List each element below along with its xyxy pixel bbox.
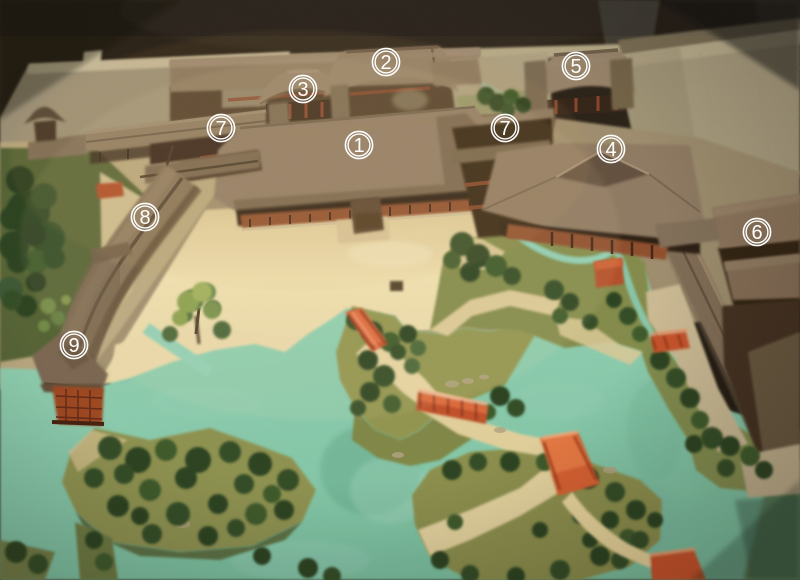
svg-text:4: 4 — [605, 139, 616, 161]
svg-text:7: 7 — [499, 118, 510, 140]
svg-text:2: 2 — [380, 52, 391, 74]
svg-text:9: 9 — [68, 335, 79, 357]
svg-text:5: 5 — [570, 56, 581, 78]
svg-text:8: 8 — [139, 207, 150, 229]
svg-text:1: 1 — [353, 135, 364, 157]
svg-text:6: 6 — [751, 222, 762, 244]
svg-text:3: 3 — [297, 79, 308, 101]
svg-text:7: 7 — [215, 118, 226, 140]
